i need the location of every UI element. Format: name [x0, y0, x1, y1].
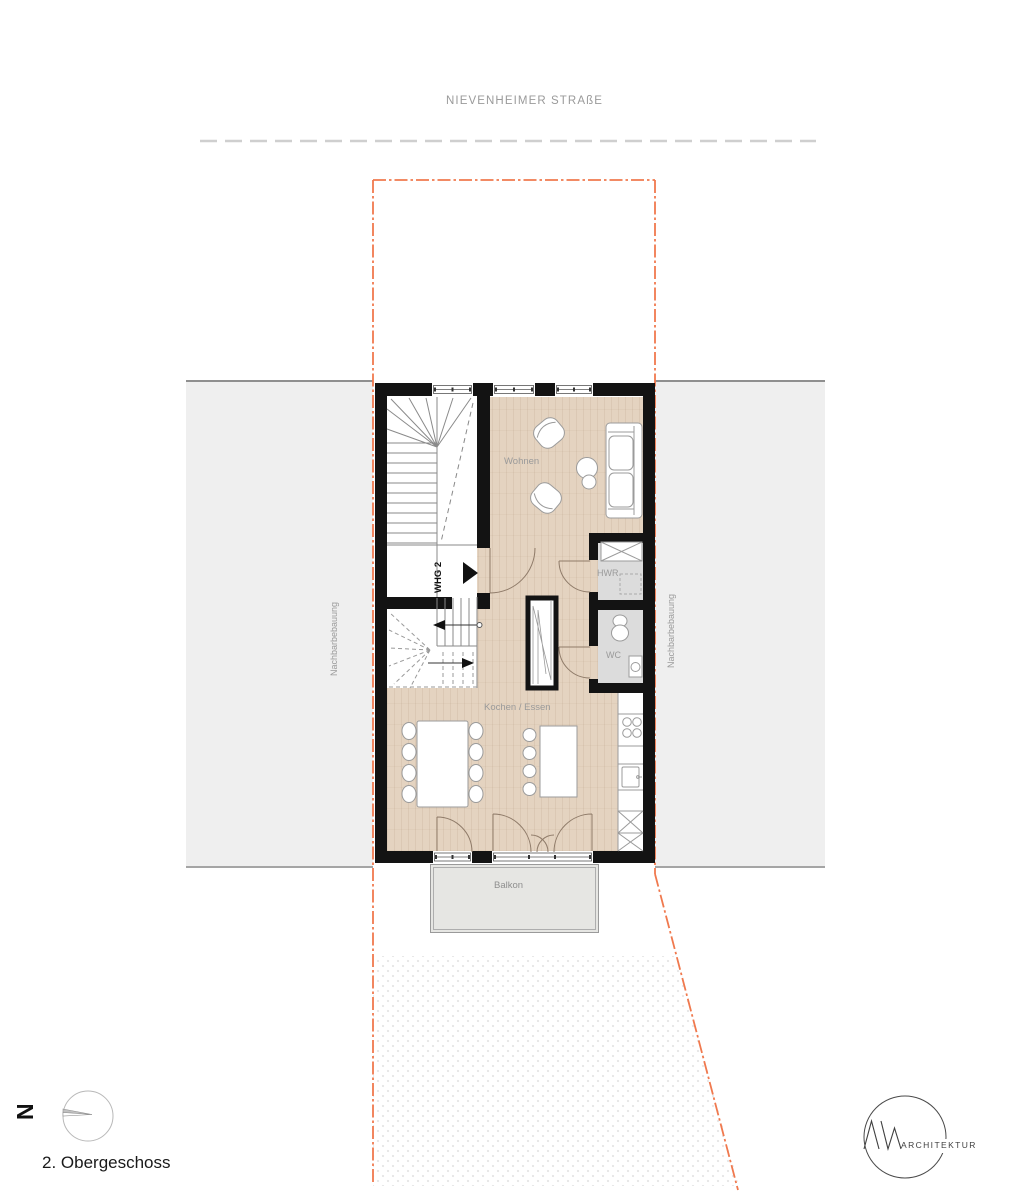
dining-table [417, 721, 468, 807]
armchair [527, 479, 565, 517]
balcony-door-left [437, 817, 472, 852]
hwr-door [559, 561, 590, 592]
armchair [530, 414, 568, 452]
room-label-wc: WC [606, 650, 621, 660]
plan-linework [0, 0, 1011, 1200]
dryer-footprint [620, 574, 641, 594]
cooktop-burner [623, 718, 632, 727]
entrance-door [490, 548, 535, 593]
kitchen-island [523, 726, 577, 797]
wc-fixtures [612, 615, 643, 677]
windows-top [432, 383, 593, 396]
kitchen-counter-details [618, 693, 643, 851]
logo-wordmark: ARCHITEKTUR [901, 1140, 977, 1150]
wc-door [559, 647, 590, 678]
toilet-bowl [612, 625, 629, 641]
french-door-right [554, 814, 592, 852]
room-label-wohnen: Wohnen [504, 456, 539, 467]
room-label-kochen-essen: Kochen / Essen [484, 702, 551, 713]
tall-unit [618, 833, 643, 851]
french-door-center [531, 835, 554, 852]
french-door-left [493, 814, 531, 852]
dining-set [402, 721, 483, 807]
side-table [582, 475, 596, 489]
shaft [528, 598, 556, 688]
architect-logo [864, 1096, 972, 1178]
north-label: N [12, 1103, 38, 1120]
unit-label-whg2: WHG 2 [433, 562, 444, 593]
apartment-stairs [389, 597, 482, 688]
north-compass [63, 1091, 113, 1141]
whg2-entry-arrow [463, 562, 478, 584]
street-label: NIEVENHEIMER STRAßE [446, 95, 603, 107]
tall-unit [618, 811, 643, 833]
windows-bottom [433, 851, 593, 863]
neighbor-label-left: Nachbarbebauung [328, 602, 340, 676]
room-label-balkon: Balkon [494, 880, 523, 891]
living-furniture [527, 414, 642, 518]
neighbor-label-right: Nachbarbebauung [665, 594, 677, 668]
floor-title: 2. Obergeschoss [42, 1153, 171, 1173]
room-label-hwr: HWR [597, 568, 619, 578]
